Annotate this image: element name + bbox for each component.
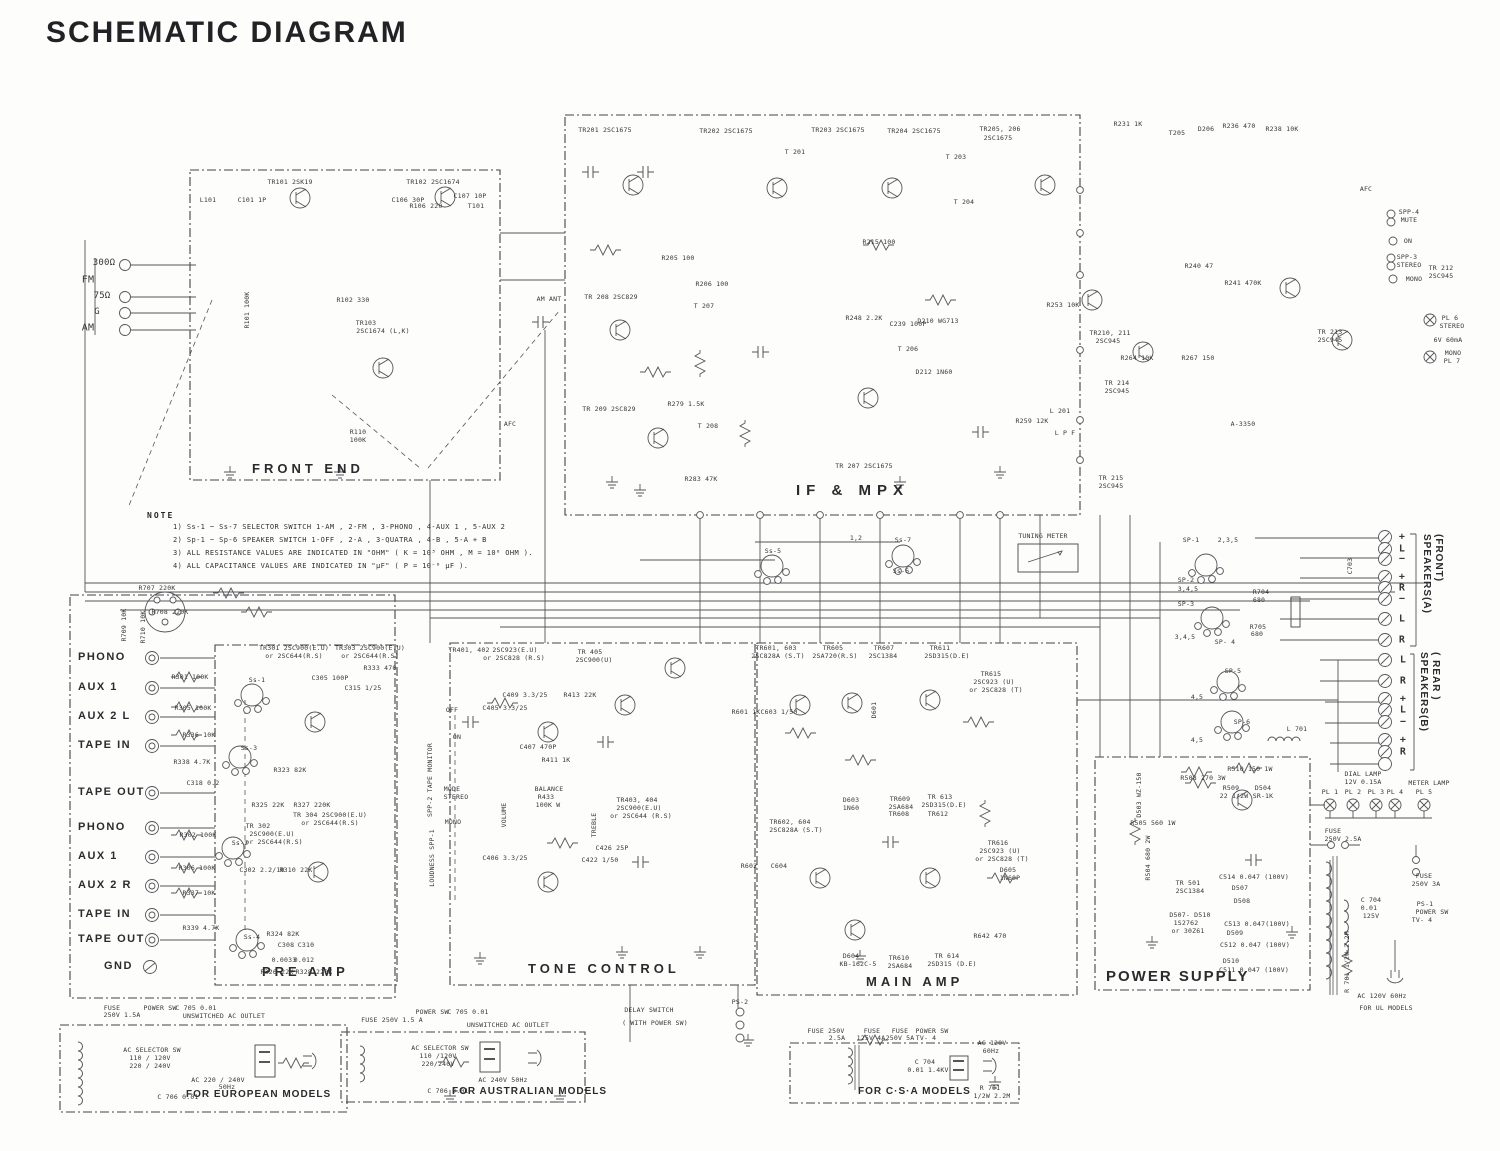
component-label: D503 WZ-150 [1135, 772, 1143, 817]
wire [145, 963, 155, 971]
component-label: TR201 2SC1675 [578, 126, 631, 134]
component-label: 2SC1674 (L,K) [356, 327, 409, 335]
terminal [1387, 262, 1395, 270]
terminal [239, 952, 246, 959]
component-label: C315 1/25 [344, 684, 381, 692]
terminal [146, 880, 159, 893]
terminal [250, 951, 257, 958]
terminal [1082, 290, 1102, 310]
component-label: L101 [200, 196, 216, 204]
terminal [736, 1021, 744, 1029]
component-label: TREBLE [590, 813, 598, 838]
input-terminal-label: PHONO [78, 651, 126, 663]
wire [1028, 551, 1062, 562]
terminal [146, 909, 159, 922]
wire [296, 189, 306, 207]
wire [671, 659, 681, 677]
component-label: METER LAMP [1408, 779, 1449, 787]
component-label: R710 10K [139, 611, 147, 644]
input-terminal-label: TAPE IN [78, 739, 131, 751]
input-terminal-label: TAPE OUT [78, 786, 145, 798]
component-label: L P F [1055, 429, 1076, 437]
terminal [764, 578, 771, 585]
component-label: L 201 [1050, 407, 1071, 415]
component-label: 50Hz [219, 1083, 235, 1091]
terminal [1209, 576, 1216, 583]
component-label: PS-1 [1417, 900, 1433, 908]
terminal [232, 769, 239, 776]
component-label: R205 100 [662, 254, 695, 262]
component-label: R602 [741, 862, 757, 870]
page-title: SCHEMATIC DIAGRAM [46, 16, 408, 50]
component-label: TR 405 [578, 648, 603, 656]
component-label: TR 212 [1429, 264, 1454, 272]
component-label: FOR UL MODELS [1359, 1004, 1412, 1012]
terminal [1195, 623, 1202, 630]
component-label: TR601, 603 [755, 644, 796, 652]
component-label: 2SC1384 [869, 652, 898, 660]
component-label: D604 [843, 952, 859, 960]
component-label: STEREO [1440, 322, 1465, 330]
component-label: 110 / 120V [129, 1054, 170, 1062]
terminal [154, 597, 160, 603]
terminal [216, 853, 223, 860]
wire [1286, 279, 1296, 297]
terminal [1077, 230, 1084, 237]
terminal [235, 700, 242, 707]
component-label: R253 10K [1047, 301, 1080, 309]
terminal [146, 822, 159, 835]
component-label: R505 560 1W [1130, 819, 1175, 827]
component-label: 1,2 [850, 534, 862, 542]
terminal [146, 682, 159, 695]
component-label: T 207 [694, 302, 715, 310]
component-label: TR303 2SC900(E.U) [335, 644, 405, 652]
component-label: 2SC900(U) [575, 656, 612, 664]
terminal [538, 722, 558, 742]
component-label: SPP-3 [1397, 253, 1418, 261]
component-label: Ss-5 [765, 547, 781, 555]
component-label: PL 4 [1387, 788, 1403, 796]
component-label: FUSE [1416, 872, 1432, 880]
component-label: C318 0.2 [187, 779, 220, 787]
component-label: R338 4.7K [173, 758, 210, 766]
component-label: AFC [1360, 185, 1372, 193]
component-label: R 701 [980, 1084, 1001, 1092]
component-label: D507 [1232, 884, 1248, 892]
terminal [236, 859, 243, 866]
component-label: R106 220 [410, 202, 443, 210]
component-label: R336 10K [183, 731, 216, 739]
speakers-b-group-label: SPEAKERS(B) ( REAR ) [1418, 652, 1441, 770]
component-label: TV- 4 [916, 1034, 937, 1042]
terminal [1224, 734, 1231, 741]
symbol-box [480, 1042, 500, 1072]
component-label: D510 [1223, 957, 1239, 965]
component-label: TR203 2SC1675 [811, 126, 864, 134]
wire [864, 389, 874, 407]
terminal [665, 658, 685, 678]
component-label: or 2SC644 (R.S) [610, 812, 672, 820]
wire [314, 863, 324, 881]
component-label: R259 12K [1016, 417, 1049, 425]
component-label: 0.01 1.4KV [907, 1066, 948, 1074]
wire [441, 188, 451, 206]
component-label: TR607 [874, 644, 895, 652]
terminal [957, 512, 964, 519]
component-label: C 704 [1361, 896, 1382, 904]
component-label: T 201 [785, 148, 806, 156]
component-label: AC SELECTOR SW [411, 1044, 469, 1052]
note-line: 1) Ss-1 ~ Ss-7 SELECTOR SWITCH 1-AM , 2-… [173, 523, 533, 531]
wire [1426, 316, 1434, 324]
terminal [1220, 694, 1227, 701]
terminal [1379, 758, 1392, 771]
terminal [1195, 554, 1217, 576]
component-label: R306 100K [178, 864, 215, 872]
terminal [1217, 568, 1224, 575]
component-label: 1/2W 2.2M [973, 1092, 1010, 1100]
terminal [886, 561, 893, 568]
terminal [170, 597, 176, 603]
component-label: C512 0.047 (100V) [1220, 941, 1290, 949]
component-label: T205 [1169, 129, 1185, 137]
component-label: PL 1 [1322, 788, 1338, 796]
component-label: R707 220K [138, 584, 175, 592]
component-label: SP-1 [1183, 536, 1199, 544]
component-label: TR 214 [1105, 379, 1130, 387]
terminal [1235, 733, 1242, 740]
component-label: R433 [538, 793, 554, 801]
component-label: 250V 1.5A [103, 1011, 140, 1019]
terminal [1077, 347, 1084, 354]
speaker-terminal-label: R [1400, 747, 1406, 758]
component-label: or 2SC828 (T) [969, 686, 1022, 694]
terminal [1204, 630, 1211, 637]
block-outline [190, 170, 500, 480]
component-label: 4,5 [1191, 693, 1203, 701]
terminal [775, 577, 782, 584]
component-label: 250V 2.5A [1324, 835, 1361, 843]
component-label: D210 WG713 [917, 317, 958, 325]
component-label: A-3350 [1231, 420, 1256, 428]
component-label: 0.012 [294, 956, 315, 964]
component-label: C405 3.3/25 [482, 704, 527, 712]
terminal [1280, 278, 1300, 298]
component-label: or 2SC644(R.S) [265, 652, 323, 660]
component-label: R504 680 2W [1144, 835, 1152, 880]
component-label: ( WITH POWER SW) [622, 1019, 688, 1027]
component-label: MODE [444, 785, 460, 793]
speakers-b-label: SPEAKERS(B) [1418, 652, 1429, 770]
component-label: 2SC1675 [984, 134, 1013, 142]
component-label: 1N60P [1000, 874, 1021, 882]
component-label: 3,4,5 [1175, 633, 1196, 641]
wire [379, 359, 389, 377]
terminal [120, 260, 131, 271]
terminal [697, 512, 704, 519]
component-label: R323 82K [274, 766, 307, 774]
component-label: 1N60 [843, 804, 859, 812]
speaker-terminal-label: + [1399, 572, 1405, 583]
speaker-terminal-label: − [1399, 554, 1405, 565]
terminal [1077, 187, 1084, 194]
speaker-terminal-label: L [1400, 655, 1406, 666]
component-label: 1S2762 [1174, 919, 1199, 927]
symbol-box [1018, 544, 1078, 572]
component-label: ON [453, 733, 461, 741]
terminal [858, 388, 878, 408]
input-terminal-label: TAPE IN [78, 908, 131, 920]
terminal [842, 693, 862, 713]
component-label: R642 470 [974, 932, 1007, 940]
speaker-terminal-label: R [1399, 635, 1405, 646]
wire [816, 869, 826, 887]
gnd-terminal-label: GND [104, 960, 133, 972]
tone-control-block-label: TONE CONTROL [528, 961, 680, 976]
wire [848, 694, 858, 712]
component-label: PL 6 [1442, 314, 1458, 322]
component-label: R509 [1223, 784, 1239, 792]
phones-jack [1291, 597, 1300, 627]
component-label: R324 82K [267, 930, 300, 938]
wire [544, 873, 554, 891]
component-label: or 2SC828 (R.S) [483, 654, 545, 662]
component-label: D509 [1227, 929, 1243, 937]
component-label: 2SC1384 [1176, 887, 1205, 895]
schematic-wiring-artwork [0, 0, 1500, 1151]
component-label: C409 3.3/25 [502, 691, 547, 699]
component-label: 2SA684 [888, 962, 913, 970]
component-label: TR610 [889, 954, 910, 962]
component-label: TUNING METER [1018, 532, 1067, 540]
australian-models-caption: FOR AUSTRALIAN MODELS [452, 1086, 607, 1097]
speaker-terminal-label: − [1400, 717, 1406, 728]
terminal [149, 790, 155, 796]
component-label: R325 22K [252, 801, 285, 809]
component-label: R510 150 1W [1227, 765, 1272, 773]
component-label: BALANCE [535, 785, 564, 793]
component-label: Ss-7 [895, 536, 911, 544]
terminal [615, 695, 635, 715]
component-label: R240 47 [1185, 262, 1214, 270]
component-label: or 30Z61 [1172, 927, 1205, 935]
component-label: 2SA720(R.S) [812, 652, 857, 660]
component-label: R110 [350, 428, 366, 436]
wire [1420, 801, 1428, 809]
input-terminal-label: PHONO [78, 821, 126, 833]
component-label: 3,4,5 [1178, 585, 1199, 593]
input-terminal-label: AUX 1 [78, 850, 118, 862]
component-label: T101 [468, 202, 484, 210]
component-label: TR 501 [1176, 879, 1201, 887]
component-label: R283 47K [685, 475, 718, 483]
component-label: C426 25P [596, 844, 629, 852]
wire [851, 921, 861, 939]
wire [1326, 801, 1334, 809]
component-label: R302 100K [179, 831, 216, 839]
component-label: STEREO [1397, 261, 1422, 269]
component-label: 220 / 240V [129, 1062, 170, 1070]
component-label: C406 3.3/25 [482, 854, 527, 862]
terminal [877, 512, 884, 519]
component-label: 75Ω [94, 291, 111, 301]
terminal [892, 545, 914, 567]
wire [888, 179, 898, 197]
component-label: C 704 [915, 1058, 936, 1066]
terminal [648, 428, 668, 448]
terminal [845, 920, 865, 940]
block-outline [565, 115, 1080, 515]
european-models-caption: FOR EUROPEAN MODELS [186, 1089, 331, 1100]
component-label: UNSWITCHED AC OUTLET [183, 1012, 265, 1020]
component-label: 680 [1251, 630, 1263, 638]
speaker-terminal-label: + [1400, 694, 1406, 705]
terminal [1215, 629, 1222, 636]
component-label: PL 3 [1368, 788, 1384, 796]
component-label: R215 100 [863, 238, 896, 246]
input-terminal-label: TAPE OUT [78, 933, 145, 945]
terminal [305, 712, 325, 732]
component-label: 22 1/2W [1220, 792, 1249, 800]
terminal [623, 175, 643, 195]
component-label: 220/240V [422, 1060, 455, 1068]
component-label: TV- 4 [1412, 916, 1433, 924]
component-label: G [94, 307, 100, 317]
wire [616, 321, 626, 339]
terminal [1215, 727, 1222, 734]
component-label: TR401, 402 [448, 646, 489, 654]
terminal [1413, 857, 1420, 864]
wire [621, 696, 631, 714]
component-label: 125V [1363, 912, 1379, 920]
component-label: R327 220K [293, 801, 330, 809]
component-label: 2SD315(D.E) [924, 652, 969, 660]
wire [1426, 353, 1434, 361]
component-label: 2SC945 [1318, 336, 1343, 344]
component-label: TR 302 [246, 822, 271, 830]
wire [926, 869, 936, 887]
speakers-a-group-label: SPEAKERS(A) (FRONT) [1421, 534, 1444, 646]
terminal [810, 868, 830, 888]
component-label: TR103 [356, 319, 377, 327]
notes-block: NOTE 1) Ss-1 ~ Ss-7 SELECTOR SWITCH 1-AM… [147, 511, 533, 575]
terminal [882, 178, 902, 198]
terminal [146, 711, 159, 724]
wire [773, 179, 783, 197]
component-label: or 2SC644(R.S) [301, 819, 359, 827]
component-label: 2,3,5 [1218, 536, 1239, 544]
terminal [258, 943, 265, 950]
component-label: R709 10K [120, 609, 128, 642]
component-label: 2SD315(D.E) [921, 801, 966, 809]
component-label: D212 1N60 [915, 368, 952, 376]
component-label: FM [82, 275, 94, 286]
component-label: TR205, 206 [979, 125, 1020, 133]
component-label: AFC [504, 420, 516, 428]
component-label: R411 1K [542, 756, 571, 764]
component-label: D504 [1255, 784, 1271, 792]
terminal [755, 571, 762, 578]
component-label: TR101 2SK19 [267, 178, 312, 186]
component-label: D605 [1000, 866, 1016, 874]
terminal [244, 707, 251, 714]
component-label: POWER SW [1416, 908, 1449, 916]
input-terminal-label: AUX 2 R [78, 879, 132, 891]
component-label: PL 5 [1416, 788, 1432, 796]
component-label: 2SC900(E.U) [249, 830, 294, 838]
component-label: 2SD315 (D.E) [927, 960, 976, 968]
speaker-terminal-label: R [1399, 583, 1405, 594]
component-label: Ss-2 [232, 839, 248, 847]
component-label: 110 /120V [419, 1052, 456, 1060]
component-label: 100K [350, 436, 366, 444]
component-label: C511 0.047 (100V) [1219, 966, 1289, 974]
component-label: C 705 0.01 [447, 1008, 488, 1016]
component-label: R101 100K [243, 291, 251, 328]
wire [1391, 801, 1399, 809]
component-label: R337 10K [183, 889, 216, 897]
component-label: SP-2 [1178, 576, 1194, 584]
component-label: 125V 4A [857, 1034, 886, 1042]
component-label: FUSE [1325, 827, 1341, 835]
component-label: SPP-2 TAPE MONITOR [426, 743, 434, 817]
component-label: TR616 [988, 839, 1009, 847]
terminal [255, 706, 262, 713]
component-label: R264 10K [1121, 354, 1154, 362]
component-label: D507- D510 [1169, 911, 1210, 919]
component-label: TR 614 [935, 952, 960, 960]
component-label: D601 [870, 702, 878, 718]
component-label: C603 1/50 [760, 708, 797, 716]
terminal [1389, 237, 1397, 245]
wire [983, 1058, 996, 1074]
component-label: MONO [1406, 275, 1422, 283]
component-label: PS-2 [732, 998, 748, 1006]
wire [528, 1050, 541, 1066]
terminal [149, 912, 155, 918]
component-label: or 2SC828 (T) [975, 855, 1028, 863]
component-label: MONO [1445, 349, 1461, 357]
component-label: STEREO [444, 793, 469, 801]
component-label: TR615 [981, 670, 1002, 678]
terminal [1239, 685, 1246, 692]
component-label: 2SC923 (U) [973, 678, 1014, 686]
component-label: TR 208 2SC829 [584, 293, 637, 301]
terminal [736, 1008, 744, 1016]
component-label: 250V 5A [886, 1034, 915, 1042]
component-label: D508 [1234, 897, 1250, 905]
terminal [146, 934, 159, 947]
component-label: VOLUME [500, 803, 508, 828]
component-label: T 208 [698, 422, 719, 430]
component-label: R310 22K [280, 866, 313, 874]
component-label: C305 100P [311, 674, 348, 682]
component-label: R206 100 [696, 280, 729, 288]
component-label: AM ANT [537, 295, 562, 303]
component-label: MUTE [1401, 216, 1417, 224]
note-line: 4) ALL CAPACITANCE VALUES ARE INDICATED … [173, 562, 533, 570]
component-label: R102 330 [337, 296, 370, 304]
terminal [149, 655, 155, 661]
wire [654, 429, 664, 447]
component-label: 2SC900(E.U) [616, 804, 661, 812]
terminal [149, 714, 155, 720]
schematic-sheet: SCHEMATIC DIAGRAM NOTE 1) Ss-1 ~ Ss-7 SE… [0, 0, 1500, 1151]
if-mpx-block-label: IF & MPX [796, 482, 909, 499]
terminal [162, 619, 168, 625]
wire [1372, 801, 1380, 809]
